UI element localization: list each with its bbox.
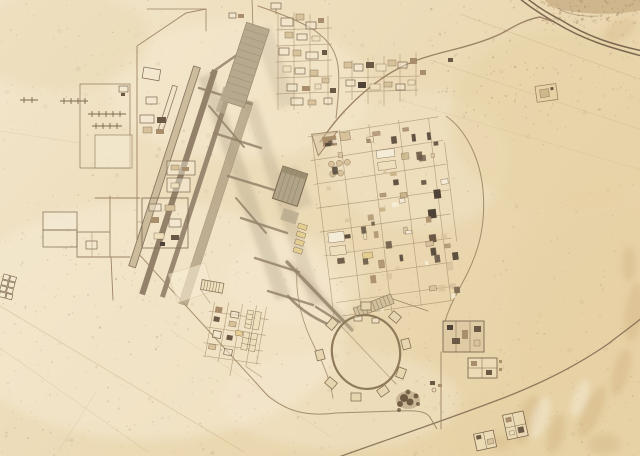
satellite-image	[0, 0, 640, 456]
airbase-satellite-map	[0, 0, 640, 456]
small-compound-west	[474, 430, 497, 451]
compound-small	[468, 358, 502, 378]
ne-square-compound	[535, 84, 558, 103]
compound-large	[443, 321, 484, 352]
terrain	[0, 0, 640, 456]
